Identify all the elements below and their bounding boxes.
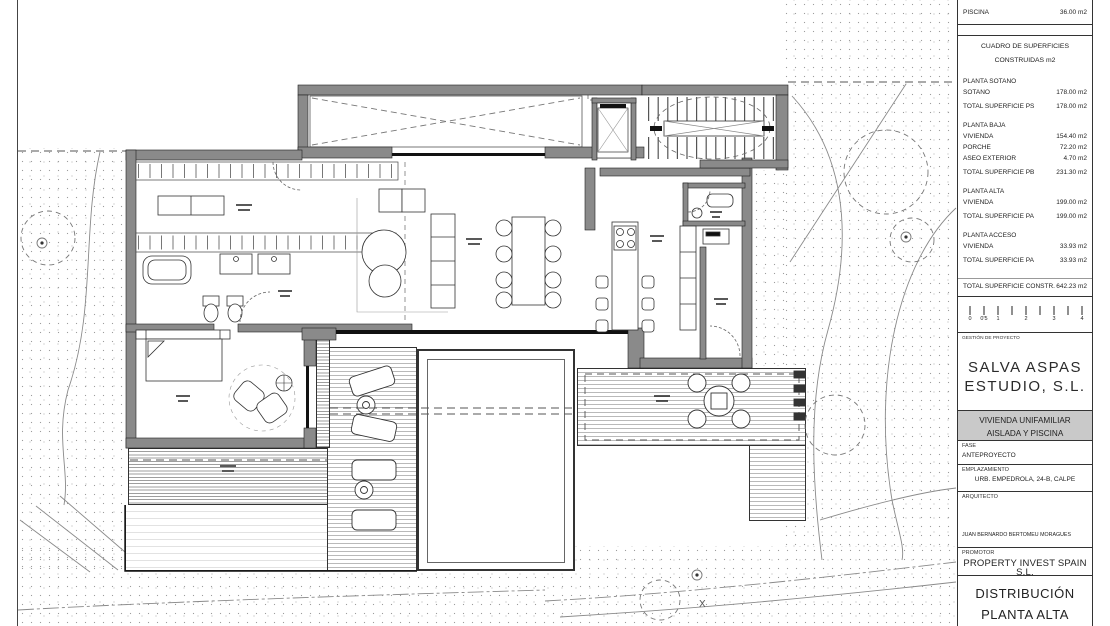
piscina-row: PISCINA 36.00 m2 — [958, 0, 1092, 25]
dressing-room — [136, 162, 405, 324]
lower-slat-terrace — [128, 448, 328, 505]
scale-label: 1 — [996, 316, 999, 322]
piscina-value: 36.00 m2 — [1060, 7, 1087, 18]
section-planta-acceso: PLANTA ACCESO VIVIENDA 33.93 m2 TOTAL SU… — [958, 230, 1092, 266]
scale-label: 4 — [1080, 316, 1083, 322]
surfaces-table-title: CUADRO DE SUPERFICIES CONSTRUIDAS m2 — [958, 36, 1092, 68]
kitchen — [596, 222, 729, 332]
section-planta-sotano: PLANTA SOTANO SOTANO 178.00 m2 TOTAL SUP… — [958, 76, 1092, 112]
table-row-total: TOTAL SUPERFICIE PA 199.00 m2 — [958, 211, 1092, 222]
section-planta-baja: PLANTA BAJA VIVIENDA 154.40 m2 PORCHE 72… — [958, 120, 1092, 178]
surfaces-title-line2: CONSTRUIDAS m2 — [958, 54, 1092, 68]
surfaces-table: CUADRO DE SUPERFICIES CONSTRUIDAS m2 PLA… — [958, 36, 1092, 297]
scale-label: 0'5 — [980, 316, 987, 322]
pool-deck-loungers — [327, 347, 417, 571]
scale-label: 3 — [1052, 316, 1055, 322]
table-row-total: TOTAL SUPERFICIE PS 178.00 m2 — [958, 101, 1092, 112]
terrain-right — [782, 0, 956, 550]
table-row-total: TOTAL SUPERFICIE PA 33.93 m2 — [958, 255, 1092, 266]
piscina-label: PISCINA — [963, 7, 989, 18]
scale-label: 0 — [968, 316, 971, 322]
east-porch-deck — [577, 368, 806, 446]
table-row-total: TOTAL SUPERFICIE PB 231.30 m2 — [958, 167, 1092, 178]
section-planta-alta: PLANTA ALTA VIVIENDA 199.00 m2 TOTAL SUP… — [958, 186, 1092, 222]
title-block: PISCINA 36.00 m2 CUADRO DE SUPERFICIES C… — [957, 0, 1093, 626]
lower-white-terrace — [125, 505, 327, 571]
project-title-band: VIVIENDA UNIFAMILIAR AISLADA Y PISCINA — [958, 411, 1092, 441]
pool-water — [427, 359, 565, 563]
table-row: SOTANO 178.00 m2 — [958, 87, 1092, 98]
bathroom — [143, 254, 292, 322]
table-row: VIVIENDA 154.40 m2 — [958, 131, 1092, 142]
living-dining — [357, 189, 561, 312]
elevator — [597, 103, 631, 158]
management-box: GESTIÓN DE PROYECTO SALVA ASPAS ESTUDIO,… — [958, 333, 1092, 411]
spacer-row — [958, 25, 1092, 36]
field-emplazamiento: EMPLAZAMIENTO URB. EMPEDROLA, 24-B, CALP… — [958, 465, 1092, 492]
surfaces-title-line1: CUADRO DE SUPERFICIES — [958, 40, 1092, 54]
terrain-left — [18, 148, 126, 568]
studio-name: SALVA ASPAS ESTUDIO, S.L. — [958, 358, 1092, 396]
drawing-sheet: X — [0, 0, 1110, 626]
table-row: VIVIENDA 33.93 m2 — [958, 241, 1092, 252]
scale-label: 2 — [1024, 316, 1027, 322]
management-label: GESTIÓN DE PROYECTO — [958, 333, 1092, 342]
field-arquitecto: ARQUITECTO JUAN BERNARDO BERTOMEU MORAGU… — [958, 492, 1092, 548]
table-row: ASEO EXTERIOR 4.70 m2 — [958, 153, 1092, 164]
field-fase: FASE ANTEPROYECTO — [958, 441, 1092, 465]
table-row: VIVIENDA 199.00 m2 — [958, 197, 1092, 208]
field-promotor: PROMOTOR PROPERTY INVEST SPAIN S.L. — [958, 548, 1092, 576]
terrain-east-gap — [752, 170, 788, 366]
wc-pantry — [688, 190, 740, 356]
drawing-title: DISTRIBUCIÓN PLANTA ALTA — [958, 576, 1092, 626]
table-row: PORCHE 72.20 m2 — [958, 142, 1092, 153]
swimming-pool — [417, 349, 575, 571]
bedroom-steps — [316, 334, 330, 448]
void-double-height — [310, 88, 634, 147]
bedroom — [136, 330, 295, 431]
grand-total-row: TOTAL SUPERFICIE CONSTR. 642.23 m2 — [958, 278, 1092, 292]
east-porch-deck-leg — [749, 445, 806, 521]
scale-bar: 0 0'5 1 2 3 4 — [958, 297, 1092, 333]
staircase — [648, 97, 774, 159]
